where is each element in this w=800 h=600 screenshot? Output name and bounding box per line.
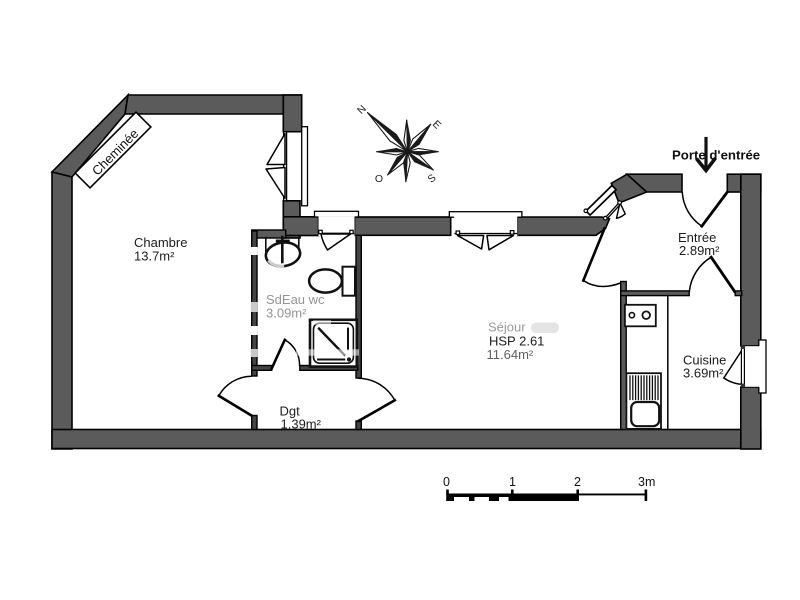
- svg-text:Séjour: Séjour: [488, 320, 526, 335]
- svg-text:11.64m²: 11.64m²: [487, 347, 534, 362]
- svg-text:1: 1: [509, 475, 516, 489]
- svg-text:2.89m²: 2.89m²: [679, 243, 720, 258]
- svg-text:2: 2: [574, 475, 581, 489]
- svg-text:O: O: [375, 173, 383, 185]
- svg-text:0: 0: [443, 475, 450, 489]
- svg-text:3.09m²: 3.09m²: [266, 306, 307, 321]
- svg-text:3.69m²: 3.69m²: [683, 366, 724, 381]
- svg-text:3m: 3m: [638, 475, 655, 489]
- svg-text:13.7m²: 13.7m²: [134, 249, 175, 264]
- svg-text:1.39m²: 1.39m²: [281, 417, 322, 432]
